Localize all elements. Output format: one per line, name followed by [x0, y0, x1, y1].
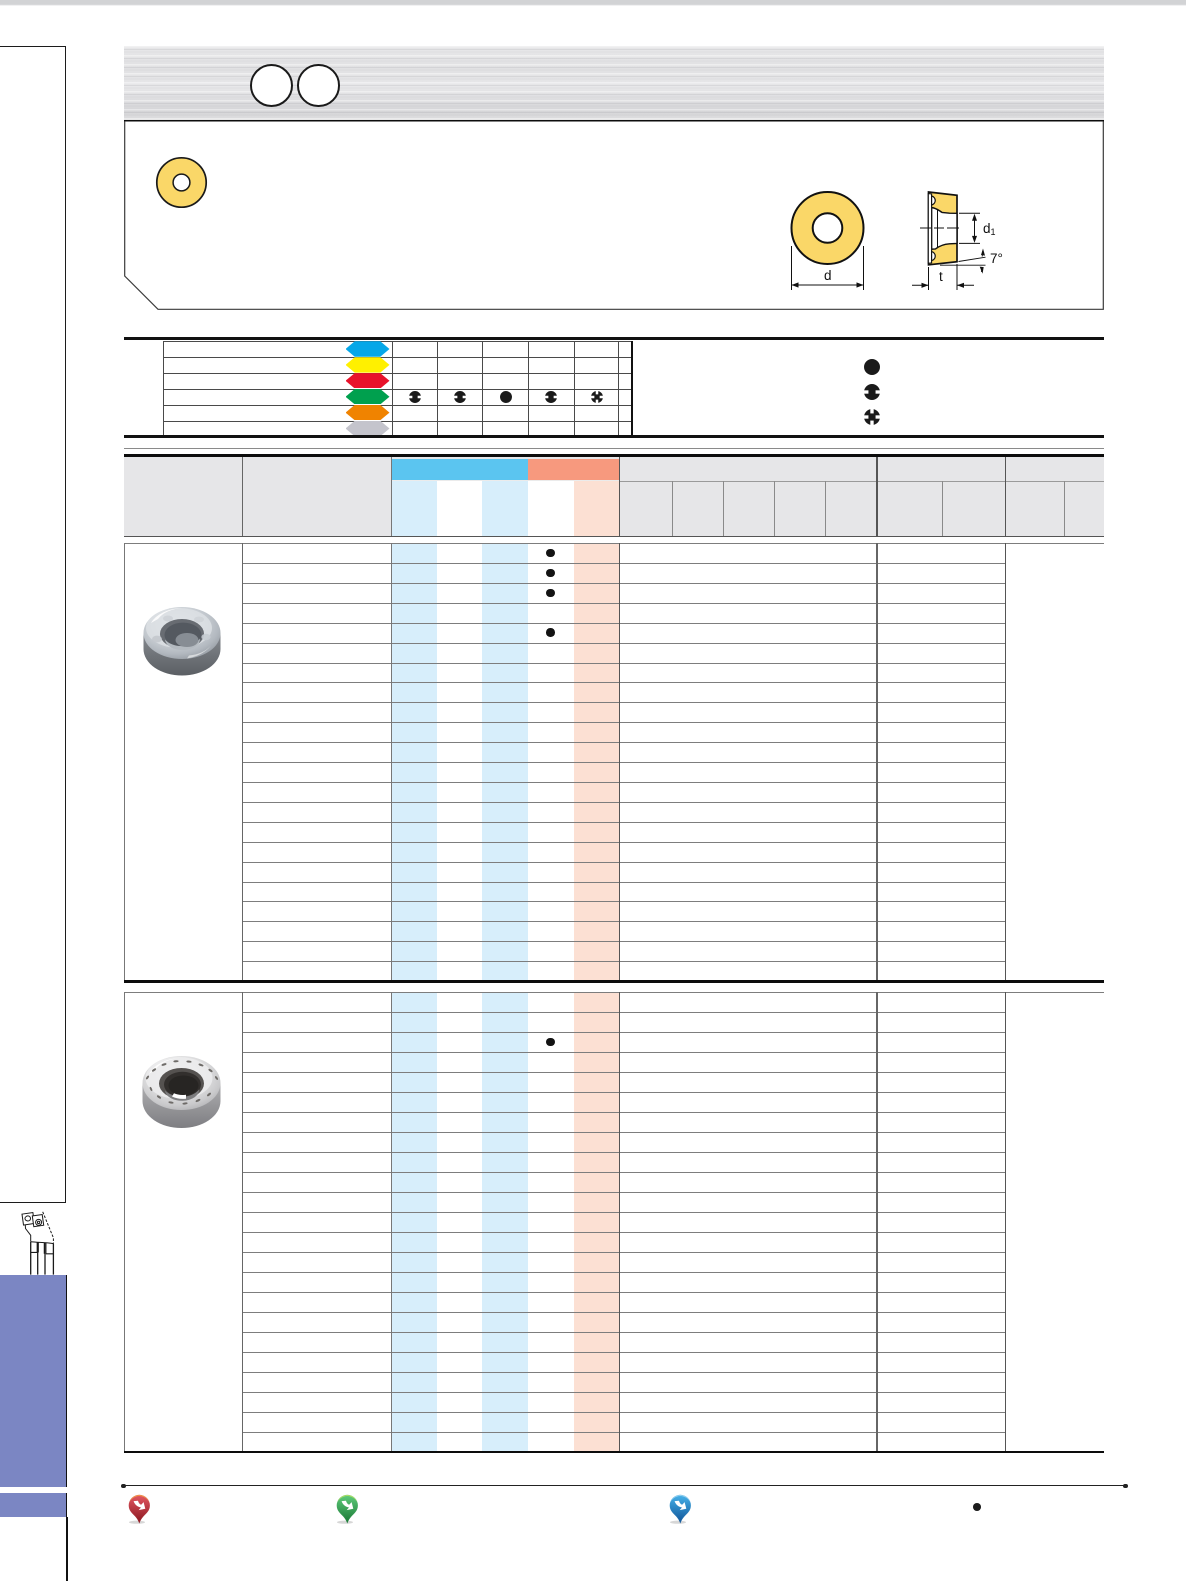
svg-text:d1: d1 — [983, 221, 996, 237]
svg-text:t: t — [939, 269, 943, 284]
svg-text:d: d — [824, 268, 832, 283]
svg-text:7°: 7° — [990, 251, 1003, 266]
